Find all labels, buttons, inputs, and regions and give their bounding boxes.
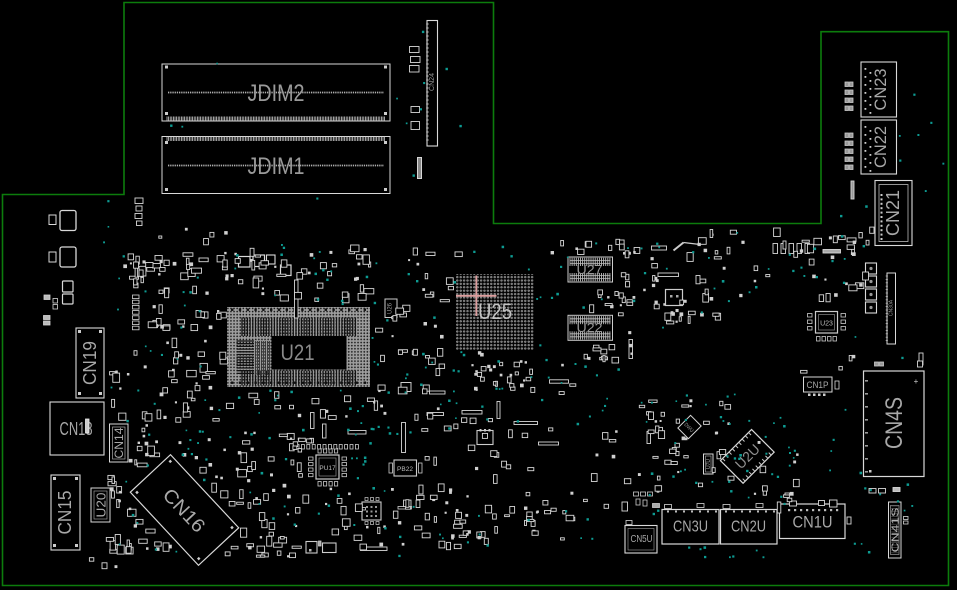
svg-text:JDIM1: JDIM1 (248, 153, 305, 180)
svg-text:+: + (914, 377, 919, 386)
svg-text:PB22: PB22 (397, 466, 413, 473)
svg-text:CN2U: CN2U (731, 519, 766, 536)
svg-text:CN1P: CN1P (807, 380, 829, 391)
svg-text:CN5U: CN5U (631, 533, 653, 545)
svg-text:CN24: CN24 (429, 73, 436, 91)
svg-text:CN30A: CN30A (889, 299, 895, 316)
svg-text:U22: U22 (577, 320, 603, 335)
svg-text:CN19: CN19 (80, 341, 100, 385)
svg-text:CN4S: CN4S (881, 397, 908, 449)
svg-text:CN41S: CN41S (890, 508, 902, 553)
svg-text:U21: U21 (281, 340, 315, 365)
svg-text:U26: U26 (388, 302, 394, 314)
svg-text:PU17: PU17 (319, 465, 336, 472)
svg-text:CN23: CN23 (871, 69, 890, 111)
svg-text:CN21: CN21 (883, 190, 903, 236)
svg-text:U27: U27 (577, 262, 603, 277)
svg-text:CN14: CN14 (112, 427, 126, 458)
svg-text:CN3U: CN3U (673, 519, 708, 536)
svg-text:JDIM2: JDIM2 (248, 80, 305, 107)
svg-text:CN1U: CN1U (793, 513, 833, 532)
svg-text:U20: U20 (94, 493, 109, 518)
svg-text:U7U: U7U (706, 459, 712, 469)
svg-text:CN15: CN15 (55, 491, 75, 535)
svg-text:CN22: CN22 (871, 126, 890, 168)
svg-text:U23: U23 (820, 321, 833, 328)
svg-text:U25: U25 (478, 299, 512, 324)
